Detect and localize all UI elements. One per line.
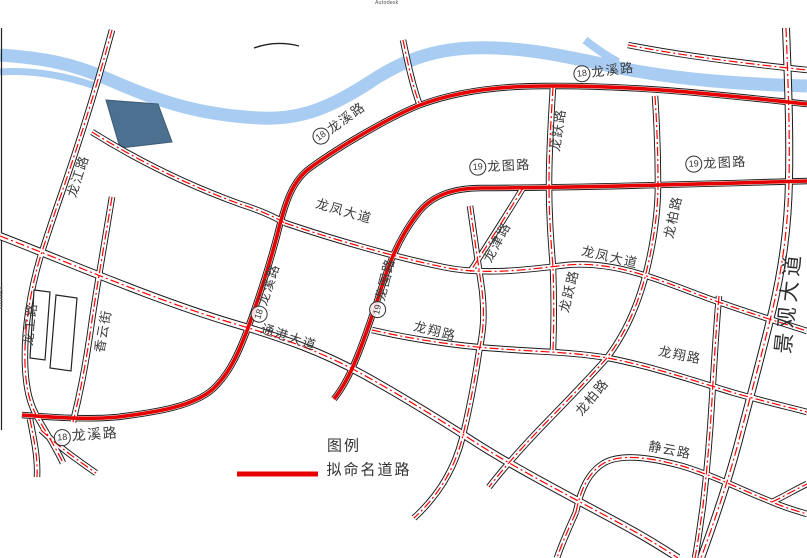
map-canvas: 18 龙溪路 18 龙溪路 18 龙溪路 18 龙溪路 19 龙图路 19 龙图…	[0, 0, 807, 558]
badge-19-icon: 19	[469, 158, 487, 176]
road-label-longtu-right: 19 龙图路	[685, 153, 747, 173]
legend-title: 图例	[327, 440, 361, 455]
badge-18-icon: 18	[53, 429, 71, 447]
building-2	[50, 295, 77, 371]
badge-18-icon: 18	[572, 64, 591, 83]
legend-proposed-label: 拟命名道路	[326, 464, 411, 479]
watermark-left: Autodesk	[0, 286, 5, 309]
pond	[106, 100, 172, 148]
road-label-longtu-left: 19 龙图路	[469, 156, 531, 176]
watermark-top: Autodesk	[375, 0, 398, 6]
badge-19-icon: 19	[685, 155, 703, 173]
bridge-arc	[254, 43, 299, 48]
